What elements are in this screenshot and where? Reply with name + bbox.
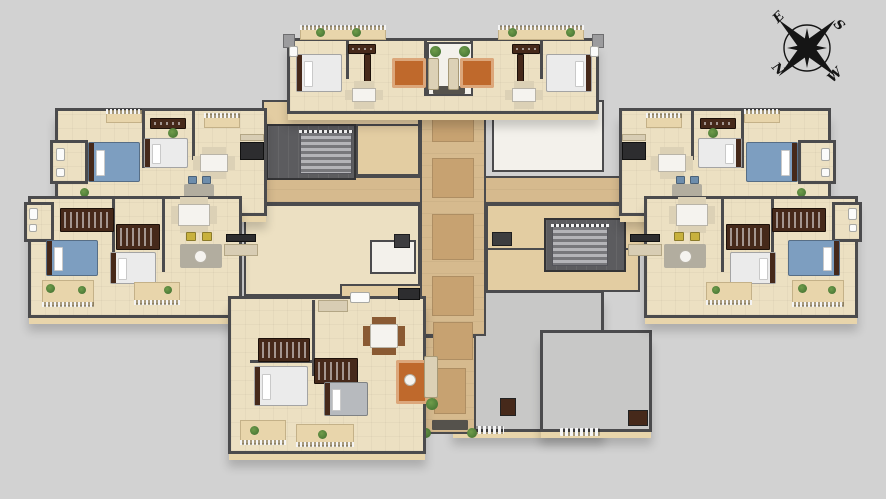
coffee-table	[194, 250, 207, 263]
wardrobe	[772, 208, 826, 232]
hall	[340, 284, 426, 298]
armchair	[676, 176, 685, 184]
bathroom	[798, 140, 836, 184]
partition-wall	[470, 38, 473, 96]
terrace-planter	[500, 398, 516, 416]
plant	[164, 286, 172, 294]
floor-slab	[287, 38, 599, 114]
dining-table	[370, 324, 398, 348]
plant	[712, 286, 720, 294]
bathroom	[50, 140, 88, 184]
balcony	[42, 280, 94, 306]
wardrobe	[700, 118, 736, 129]
plant	[316, 28, 325, 37]
bathroom-fixture	[56, 168, 65, 177]
plant	[430, 46, 441, 57]
floor-plan-render: E S W N	[0, 0, 886, 499]
balcony	[646, 114, 682, 128]
empty-room	[492, 100, 604, 172]
dining-table	[178, 204, 210, 226]
sofa	[424, 356, 438, 398]
plant	[459, 46, 470, 57]
elevator	[492, 232, 512, 246]
stairs	[300, 132, 352, 174]
bed	[546, 54, 592, 92]
entry-mat	[432, 420, 468, 430]
bed	[698, 138, 742, 168]
plant	[426, 398, 438, 410]
bed	[730, 252, 776, 284]
bathroom-fixture	[849, 224, 857, 232]
bathroom	[24, 202, 54, 242]
plant	[250, 426, 259, 435]
bed	[746, 142, 798, 182]
bathroom-fixture	[821, 168, 830, 177]
plant	[352, 28, 361, 37]
balcony	[204, 114, 240, 128]
wardrobe	[258, 338, 310, 362]
south-corridor	[424, 336, 476, 434]
partition-wall	[162, 198, 165, 272]
balcony	[744, 110, 780, 123]
plant	[467, 428, 477, 438]
bathroom-fixture	[289, 46, 298, 57]
kitchen-counter	[630, 234, 660, 242]
kitchen-sink	[350, 292, 370, 303]
runner-rug	[432, 106, 474, 142]
terrace-planter	[446, 398, 462, 414]
partition-wall	[142, 110, 145, 168]
living-room-rug	[392, 58, 426, 88]
partition-wall	[771, 198, 774, 268]
plant	[421, 428, 431, 438]
elevator	[388, 92, 406, 110]
compass-rose: E S W N	[752, 4, 862, 96]
bathroom-fixture	[821, 148, 830, 161]
rug	[664, 244, 706, 268]
compass-star-icon	[752, 4, 862, 96]
balcony	[106, 110, 142, 123]
door-mat	[433, 86, 465, 94]
living-room-rug	[396, 360, 428, 404]
bed	[46, 240, 98, 276]
sofa	[448, 58, 459, 90]
kitchen-cabinet	[240, 134, 264, 141]
floor-slab	[55, 108, 267, 216]
bed	[110, 252, 156, 284]
wardrobe	[348, 44, 376, 54]
armchair	[202, 176, 211, 184]
runner-rug	[432, 214, 474, 260]
kitchen-cabinet	[622, 134, 646, 141]
central-corridor	[420, 96, 486, 336]
hall	[244, 204, 420, 296]
plant	[708, 128, 718, 138]
partition-wall	[691, 110, 694, 160]
living-room-rug	[460, 58, 494, 88]
coffee-table	[679, 250, 692, 263]
bathroom-fixture	[848, 208, 857, 220]
wardrobe	[726, 224, 770, 250]
dining-table	[658, 154, 686, 172]
partition-wall	[192, 110, 195, 160]
partition-wall	[721, 198, 724, 272]
stairs	[552, 226, 608, 266]
bathroom-fixture	[590, 46, 599, 57]
runner-rug	[434, 368, 466, 414]
west-corridor	[240, 176, 422, 204]
partition-wall	[540, 41, 543, 79]
runner-rug	[432, 276, 474, 316]
hall	[486, 204, 646, 250]
bed	[324, 382, 368, 416]
plant	[46, 284, 55, 293]
dining-table	[200, 154, 228, 172]
floor-slab	[228, 296, 426, 454]
tv-unit	[517, 54, 524, 84]
stove	[398, 288, 420, 300]
bed	[144, 138, 188, 168]
east-corridor	[484, 176, 664, 204]
entry-foyer	[427, 42, 473, 96]
bathroom-fixture	[56, 148, 65, 161]
runner-rug	[433, 322, 473, 360]
wardrobe	[60, 208, 114, 232]
floor-slab	[28, 196, 242, 318]
terrace	[452, 290, 604, 432]
armchair	[674, 232, 684, 241]
ac-unit	[283, 34, 295, 48]
coffee-table	[404, 374, 416, 386]
balcony	[498, 26, 584, 40]
bathroom-fixture	[29, 224, 37, 232]
wardrobe	[314, 358, 358, 384]
bed	[254, 366, 308, 406]
floor-slab	[644, 196, 858, 318]
terrace-railing	[458, 426, 504, 434]
elevator	[394, 234, 410, 248]
plant	[168, 128, 178, 138]
plant	[798, 284, 807, 293]
kitchen-counter	[240, 142, 264, 160]
armchair	[188, 176, 197, 184]
kitchen-cabinet	[224, 244, 258, 256]
dining-table	[512, 88, 536, 102]
stairwell	[544, 218, 626, 272]
tv-unit	[364, 54, 371, 84]
terrace	[540, 330, 652, 432]
wardrobe	[116, 224, 160, 250]
wardrobe	[512, 44, 540, 54]
balcony	[706, 282, 752, 304]
hall	[486, 248, 640, 292]
balcony	[792, 280, 844, 306]
armchair	[690, 176, 699, 184]
dining-table	[352, 88, 376, 102]
elevator	[494, 92, 512, 110]
hall	[356, 124, 420, 176]
balcony	[240, 420, 286, 444]
partition-wall	[312, 300, 315, 376]
plant	[80, 188, 89, 197]
bed	[296, 54, 342, 92]
hall	[262, 100, 420, 128]
empty-room	[370, 240, 416, 274]
partition-wall	[112, 198, 115, 268]
balcony	[134, 282, 180, 304]
plant	[566, 28, 575, 37]
armchair	[690, 232, 700, 241]
kitchen-cabinet	[628, 244, 662, 256]
plant	[797, 188, 806, 197]
stairwell	[266, 124, 356, 180]
wardrobe	[150, 118, 186, 129]
plant	[508, 28, 517, 37]
runner-rug	[432, 158, 474, 198]
partition-wall	[250, 360, 312, 363]
bathroom-fixture	[29, 208, 38, 220]
ac-unit	[592, 34, 604, 48]
rug	[180, 244, 222, 268]
terrace-railing	[560, 428, 600, 436]
armchair	[202, 232, 212, 241]
floor-slab	[619, 108, 831, 216]
bed	[788, 240, 840, 276]
bathroom	[832, 202, 862, 242]
plant	[318, 430, 327, 439]
partition-wall	[346, 41, 349, 79]
dining-table	[676, 204, 708, 226]
plant	[828, 286, 836, 294]
plant	[78, 286, 86, 294]
sofa	[428, 58, 439, 90]
rug	[672, 184, 702, 202]
kitchen-cabinet	[318, 300, 348, 312]
bed	[88, 142, 140, 182]
terrace-planter	[628, 410, 648, 426]
partition-wall	[424, 38, 427, 96]
armchair	[186, 232, 196, 241]
kitchen-counter	[226, 234, 256, 242]
rug	[184, 184, 214, 202]
balcony	[296, 424, 354, 446]
partition-wall	[741, 110, 744, 168]
kitchen-counter	[622, 142, 646, 160]
balcony	[300, 26, 386, 40]
